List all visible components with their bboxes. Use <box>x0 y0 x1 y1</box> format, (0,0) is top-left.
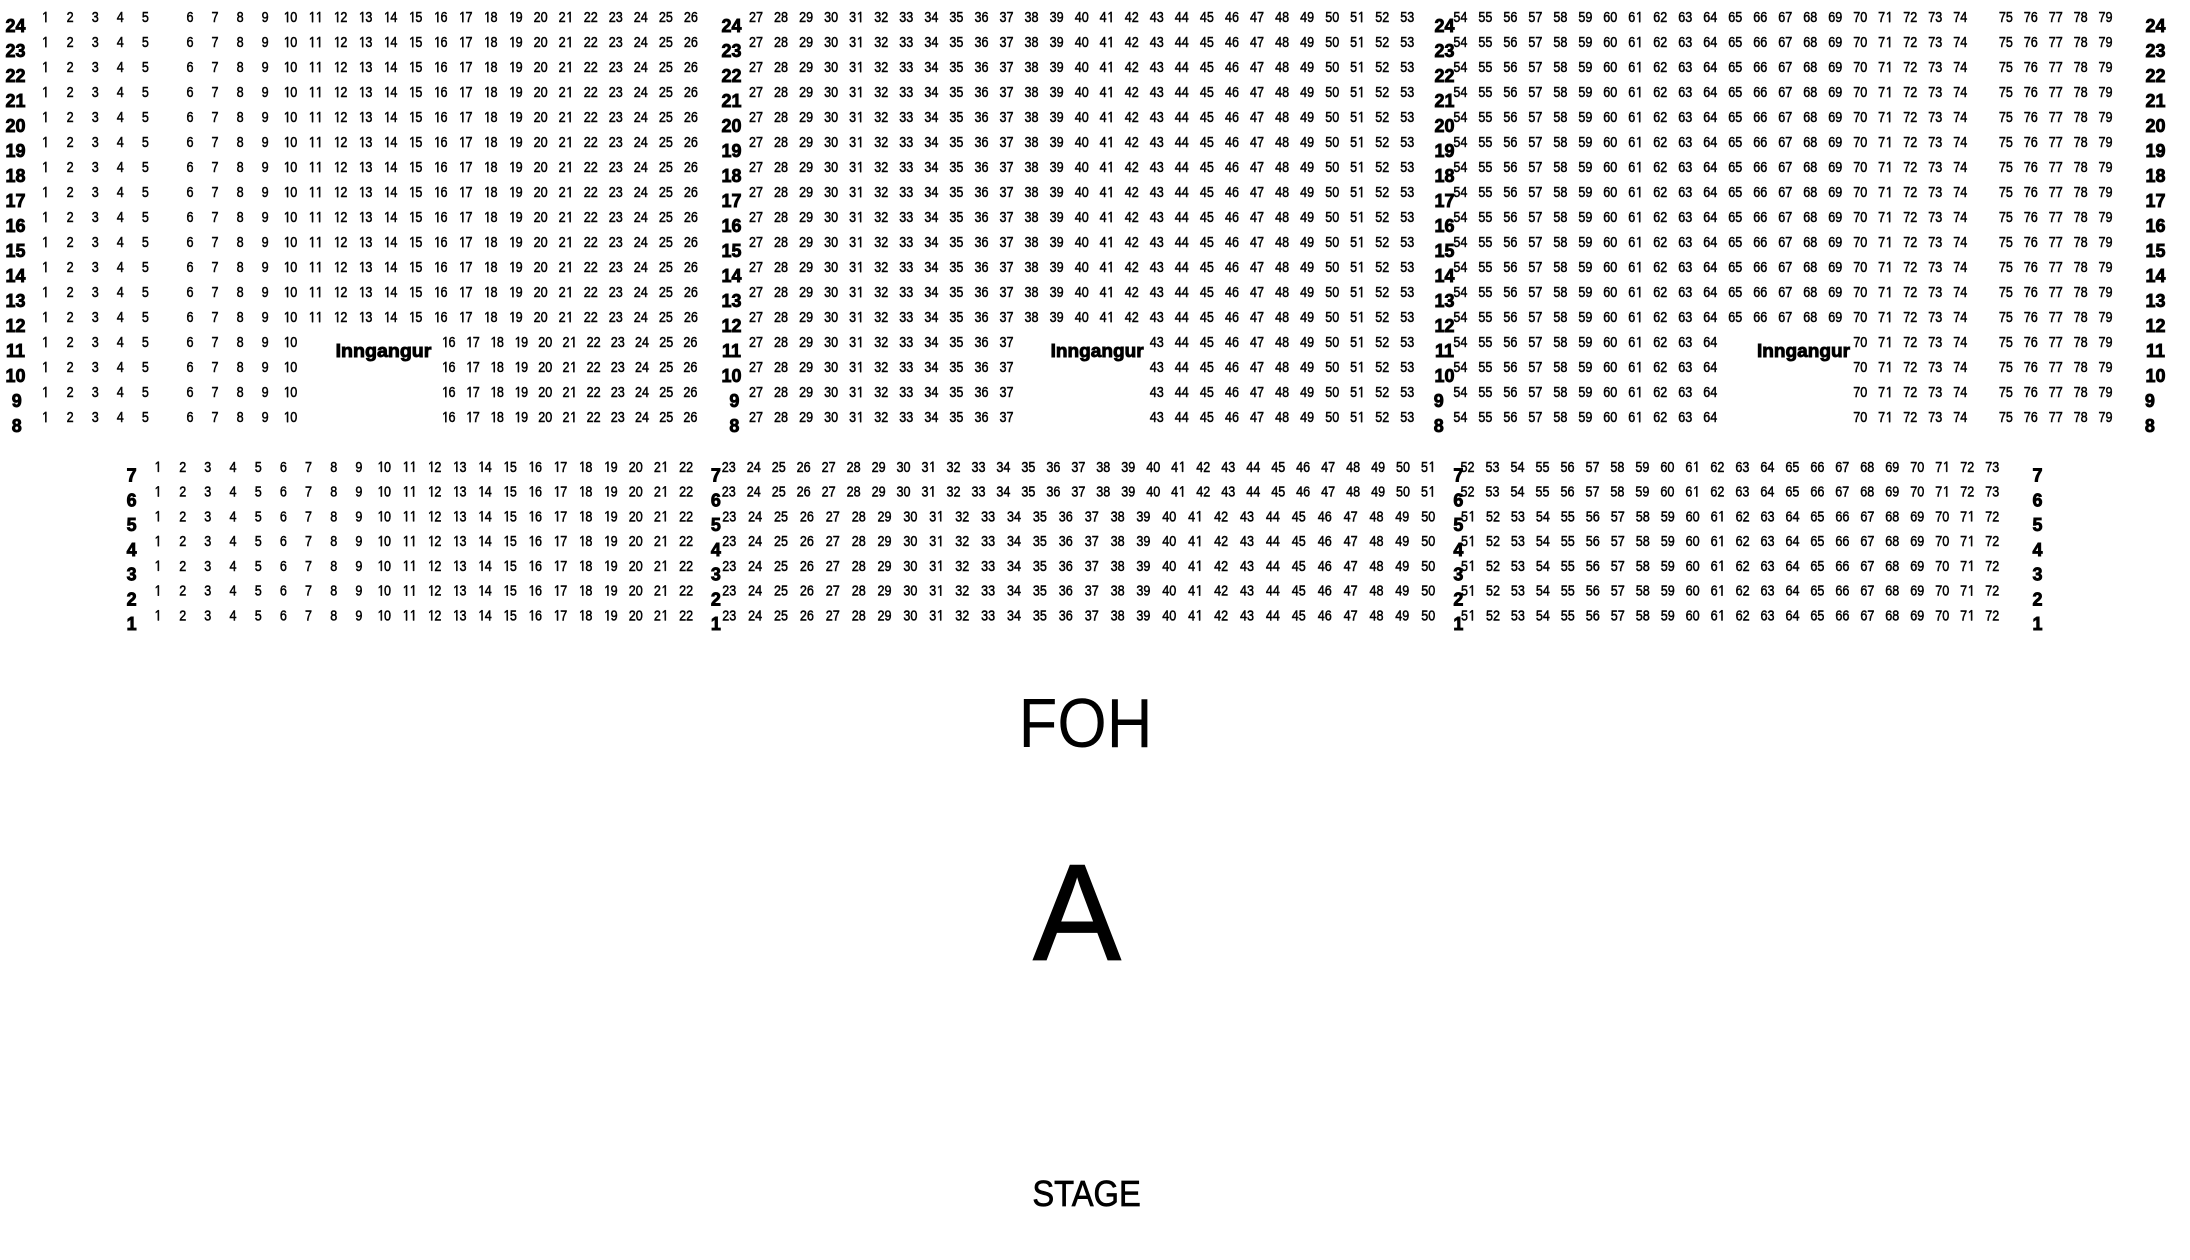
svg-text:28: 28 <box>774 408 788 425</box>
svg-text:33: 33 <box>899 408 913 425</box>
svg-text:53: 53 <box>1400 183 1414 200</box>
svg-text:5: 5 <box>510 507 517 524</box>
svg-text:44: 44 <box>1175 258 1189 275</box>
svg-text:78: 78 <box>2074 383 2088 400</box>
svg-text:56: 56 <box>1586 532 1600 549</box>
svg-text:25: 25 <box>659 258 673 275</box>
svg-text:22: 22 <box>584 33 598 50</box>
svg-text:39: 39 <box>1050 83 1064 100</box>
svg-text:48: 48 <box>1275 358 1289 375</box>
svg-text:67: 67 <box>1778 183 1792 200</box>
svg-text:66: 66 <box>1835 606 1849 623</box>
svg-text:28: 28 <box>852 557 866 574</box>
svg-text:23: 23 <box>2146 41 2166 61</box>
svg-text:3: 3 <box>365 133 372 150</box>
svg-text:6: 6 <box>1628 283 1635 300</box>
svg-text:30: 30 <box>824 33 838 50</box>
svg-text:5: 5 <box>2033 515 2043 535</box>
svg-text:7: 7 <box>211 308 218 325</box>
svg-text:24: 24 <box>2146 16 2167 36</box>
svg-text:7: 7 <box>473 358 480 375</box>
svg-text:47: 47 <box>1250 408 1264 425</box>
svg-text:2: 2 <box>434 606 441 623</box>
svg-text:7: 7 <box>305 507 312 524</box>
svg-text:53: 53 <box>1511 606 1525 623</box>
svg-text:48: 48 <box>1275 258 1289 275</box>
svg-text:60: 60 <box>1603 283 1617 300</box>
svg-text:43: 43 <box>1150 58 1164 75</box>
svg-text:3: 3 <box>929 532 936 549</box>
svg-text:5: 5 <box>255 606 262 623</box>
svg-text:36: 36 <box>974 233 988 250</box>
svg-text:63: 63 <box>1678 208 1692 225</box>
svg-text:79: 79 <box>2098 258 2112 275</box>
svg-text:35: 35 <box>949 358 963 375</box>
svg-text:8: 8 <box>585 606 592 623</box>
svg-text:38: 38 <box>1111 582 1125 599</box>
svg-text:6: 6 <box>441 258 448 275</box>
svg-text:64: 64 <box>1703 58 1717 75</box>
svg-text:4: 4 <box>117 58 124 75</box>
svg-text:2: 2 <box>559 208 566 225</box>
svg-text:23: 23 <box>609 283 623 300</box>
svg-text:6: 6 <box>280 483 287 500</box>
svg-text:48: 48 <box>1275 108 1289 125</box>
svg-text:67: 67 <box>1778 308 1792 325</box>
svg-text:44: 44 <box>1175 58 1189 75</box>
svg-text:4: 4 <box>390 308 397 325</box>
svg-text:32: 32 <box>874 158 888 175</box>
svg-text:40: 40 <box>1075 33 1089 50</box>
svg-text:6: 6 <box>449 333 456 350</box>
svg-text:49: 49 <box>1300 58 1314 75</box>
svg-text:23: 23 <box>722 507 736 524</box>
svg-text:79: 79 <box>2098 283 2112 300</box>
svg-text:2: 2 <box>654 507 661 524</box>
svg-text:8: 8 <box>237 408 244 425</box>
svg-text:75: 75 <box>1999 133 2013 150</box>
svg-text:0: 0 <box>290 158 297 175</box>
svg-text:49: 49 <box>1395 582 1409 599</box>
svg-text:49: 49 <box>1395 557 1409 574</box>
svg-text:60: 60 <box>1603 33 1617 50</box>
svg-text:5: 5 <box>415 33 422 50</box>
svg-text:52: 52 <box>1375 33 1389 50</box>
svg-text:33: 33 <box>899 8 913 25</box>
svg-text:4: 4 <box>229 483 236 500</box>
svg-text:9: 9 <box>611 458 618 475</box>
svg-text:53: 53 <box>1400 408 1414 425</box>
svg-text:16: 16 <box>2146 216 2166 236</box>
svg-text:48: 48 <box>1346 483 1360 500</box>
svg-text:20: 20 <box>534 33 548 50</box>
svg-text:13: 13 <box>1435 291 1455 311</box>
svg-text:17: 17 <box>1435 191 1455 211</box>
svg-text:24: 24 <box>634 58 648 75</box>
svg-text:38: 38 <box>1024 133 1038 150</box>
svg-text:3: 3 <box>204 483 211 500</box>
svg-text:77: 77 <box>2049 133 2063 150</box>
svg-text:7: 7 <box>1878 8 1885 25</box>
svg-text:5: 5 <box>1350 183 1357 200</box>
svg-text:23: 23 <box>609 33 623 50</box>
svg-text:8: 8 <box>237 158 244 175</box>
svg-text:2: 2 <box>179 507 186 524</box>
svg-text:57: 57 <box>1528 383 1542 400</box>
svg-text:22: 22 <box>584 283 598 300</box>
svg-text:32: 32 <box>874 233 888 250</box>
svg-text:25: 25 <box>774 507 788 524</box>
svg-text:62: 62 <box>1736 532 1750 549</box>
svg-text:28: 28 <box>774 183 788 200</box>
svg-text:30: 30 <box>903 507 917 524</box>
svg-text:76: 76 <box>2024 208 2038 225</box>
svg-text:19: 19 <box>2146 141 2166 161</box>
svg-text:47: 47 <box>1250 133 1264 150</box>
svg-text:4: 4 <box>117 108 124 125</box>
svg-text:3: 3 <box>92 308 99 325</box>
svg-text:3: 3 <box>849 33 856 50</box>
svg-text:48: 48 <box>1275 208 1289 225</box>
svg-text:65: 65 <box>1728 108 1742 125</box>
svg-text:74: 74 <box>1953 408 1967 425</box>
svg-text:Inngangur: Inngangur <box>1757 340 1851 361</box>
svg-text:29: 29 <box>799 358 813 375</box>
svg-text:37: 37 <box>999 258 1013 275</box>
svg-text:7: 7 <box>211 133 218 150</box>
svg-text:32: 32 <box>955 582 969 599</box>
svg-text:50: 50 <box>1325 183 1339 200</box>
svg-text:59: 59 <box>1578 83 1592 100</box>
svg-text:20: 20 <box>629 458 643 475</box>
svg-text:66: 66 <box>1753 58 1767 75</box>
svg-text:8: 8 <box>237 183 244 200</box>
svg-text:55: 55 <box>1478 233 1492 250</box>
svg-text:27: 27 <box>749 358 763 375</box>
svg-text:64: 64 <box>1760 458 1774 475</box>
svg-text:4: 4 <box>1100 183 1107 200</box>
svg-text:22: 22 <box>6 66 26 86</box>
svg-text:5: 5 <box>1350 408 1357 425</box>
svg-text:22: 22 <box>679 606 693 623</box>
svg-text:62: 62 <box>1653 58 1667 75</box>
svg-text:69: 69 <box>1910 557 1924 574</box>
svg-text:47: 47 <box>1344 507 1358 524</box>
svg-text:7: 7 <box>211 208 218 225</box>
svg-text:6: 6 <box>186 8 193 25</box>
svg-text:48: 48 <box>1275 283 1289 300</box>
svg-text:0: 0 <box>384 458 391 475</box>
svg-text:67: 67 <box>1860 557 1874 574</box>
svg-text:9: 9 <box>262 58 269 75</box>
svg-text:47: 47 <box>1344 557 1358 574</box>
svg-text:8: 8 <box>585 458 592 475</box>
svg-text:7: 7 <box>1960 606 1967 623</box>
svg-text:5: 5 <box>127 515 137 535</box>
svg-text:20: 20 <box>534 283 548 300</box>
svg-text:73: 73 <box>1928 83 1942 100</box>
svg-text:7: 7 <box>466 8 473 25</box>
svg-text:2: 2 <box>67 33 74 50</box>
svg-text:37: 37 <box>999 58 1013 75</box>
svg-text:78: 78 <box>2074 333 2088 350</box>
svg-text:64: 64 <box>1785 557 1799 574</box>
svg-text:26: 26 <box>684 158 698 175</box>
svg-text:36: 36 <box>974 333 988 350</box>
svg-text:3: 3 <box>365 283 372 300</box>
svg-text:40: 40 <box>1162 582 1176 599</box>
svg-text:4: 4 <box>390 33 397 50</box>
svg-text:16: 16 <box>722 216 742 236</box>
svg-text:76: 76 <box>2024 308 2038 325</box>
svg-text:72: 72 <box>1903 158 1917 175</box>
svg-text:44: 44 <box>1175 383 1189 400</box>
svg-text:59: 59 <box>1578 183 1592 200</box>
svg-text:55: 55 <box>1478 133 1492 150</box>
svg-text:72: 72 <box>1903 408 1917 425</box>
svg-text:25: 25 <box>774 606 788 623</box>
svg-text:6: 6 <box>441 133 448 150</box>
svg-text:7: 7 <box>466 108 473 125</box>
svg-text:54: 54 <box>1453 8 1467 25</box>
svg-text:8: 8 <box>491 183 498 200</box>
svg-text:0: 0 <box>384 606 391 623</box>
svg-text:57: 57 <box>1528 33 1542 50</box>
svg-text:25: 25 <box>772 483 786 500</box>
svg-text:45: 45 <box>1292 532 1306 549</box>
svg-text:8: 8 <box>237 33 244 50</box>
svg-text:20: 20 <box>534 133 548 150</box>
svg-text:0: 0 <box>290 258 297 275</box>
svg-text:28: 28 <box>774 108 788 125</box>
svg-text:77: 77 <box>2049 208 2063 225</box>
svg-text:7: 7 <box>466 133 473 150</box>
svg-text:77: 77 <box>2049 33 2063 50</box>
svg-text:64: 64 <box>1703 83 1717 100</box>
svg-text:Inngangur: Inngangur <box>1051 340 1145 361</box>
svg-text:24: 24 <box>634 208 648 225</box>
svg-text:55: 55 <box>1478 58 1492 75</box>
svg-text:67: 67 <box>1835 458 1849 475</box>
svg-text:42: 42 <box>1125 308 1139 325</box>
svg-text:45: 45 <box>1200 183 1214 200</box>
svg-text:3: 3 <box>92 133 99 150</box>
svg-text:46: 46 <box>1318 606 1332 623</box>
svg-text:45: 45 <box>1200 358 1214 375</box>
svg-text:25: 25 <box>659 358 673 375</box>
svg-text:66: 66 <box>1810 458 1824 475</box>
svg-text:7: 7 <box>711 465 721 485</box>
svg-text:2: 2 <box>340 108 347 125</box>
svg-text:60: 60 <box>1603 233 1617 250</box>
svg-text:39: 39 <box>1050 108 1064 125</box>
svg-text:17: 17 <box>6 191 26 211</box>
svg-text:3: 3 <box>92 8 99 25</box>
svg-text:60: 60 <box>1603 108 1617 125</box>
svg-text:2: 2 <box>562 358 569 375</box>
svg-text:77: 77 <box>2049 333 2063 350</box>
svg-text:45: 45 <box>1200 208 1214 225</box>
svg-text:70: 70 <box>1910 458 1924 475</box>
svg-text:63: 63 <box>1735 458 1749 475</box>
svg-text:6: 6 <box>711 490 721 510</box>
svg-text:5: 5 <box>142 58 149 75</box>
svg-text:38: 38 <box>1024 8 1038 25</box>
svg-text:68: 68 <box>1803 283 1817 300</box>
svg-text:43: 43 <box>1150 283 1164 300</box>
svg-text:8: 8 <box>237 108 244 125</box>
svg-text:68: 68 <box>1885 557 1899 574</box>
svg-text:25: 25 <box>774 532 788 549</box>
svg-text:73: 73 <box>1928 133 1942 150</box>
svg-text:4: 4 <box>390 158 397 175</box>
svg-text:38: 38 <box>1024 158 1038 175</box>
svg-text:4: 4 <box>117 283 124 300</box>
svg-text:79: 79 <box>2098 208 2112 225</box>
svg-text:23: 23 <box>722 582 736 599</box>
svg-text:9: 9 <box>355 557 362 574</box>
svg-text:68: 68 <box>1860 458 1874 475</box>
svg-text:34: 34 <box>996 483 1010 500</box>
svg-text:55: 55 <box>1478 158 1492 175</box>
svg-text:26: 26 <box>800 606 814 623</box>
svg-text:2: 2 <box>654 532 661 549</box>
svg-text:13: 13 <box>722 291 742 311</box>
svg-text:35: 35 <box>1033 507 1047 524</box>
svg-text:18: 18 <box>2146 166 2166 186</box>
svg-text:6: 6 <box>2033 490 2043 510</box>
svg-text:49: 49 <box>1371 483 1385 500</box>
svg-text:9: 9 <box>729 391 739 411</box>
svg-text:3: 3 <box>460 507 467 524</box>
svg-text:4: 4 <box>1171 483 1178 500</box>
svg-text:72: 72 <box>1903 83 1917 100</box>
svg-text:28: 28 <box>774 133 788 150</box>
svg-text:27: 27 <box>749 233 763 250</box>
svg-text:55: 55 <box>1478 183 1492 200</box>
svg-text:19: 19 <box>722 141 742 161</box>
svg-text:24: 24 <box>634 283 648 300</box>
svg-text:23: 23 <box>722 41 742 61</box>
svg-text:27: 27 <box>826 557 840 574</box>
svg-text:34: 34 <box>924 258 938 275</box>
svg-text:47: 47 <box>1250 233 1264 250</box>
svg-text:4: 4 <box>1100 58 1107 75</box>
svg-text:49: 49 <box>1300 208 1314 225</box>
svg-text:33: 33 <box>899 133 913 150</box>
svg-text:63: 63 <box>1760 532 1774 549</box>
svg-text:10: 10 <box>2146 366 2166 386</box>
svg-text:7: 7 <box>473 333 480 350</box>
svg-text:4: 4 <box>485 557 492 574</box>
svg-text:23: 23 <box>611 358 625 375</box>
svg-text:9: 9 <box>355 606 362 623</box>
svg-text:6: 6 <box>441 283 448 300</box>
svg-text:42: 42 <box>1125 108 1139 125</box>
svg-text:3: 3 <box>92 183 99 200</box>
svg-text:77: 77 <box>2049 283 2063 300</box>
svg-text:2: 2 <box>559 283 566 300</box>
svg-text:32: 32 <box>874 108 888 125</box>
svg-text:62: 62 <box>1653 308 1667 325</box>
svg-text:24: 24 <box>634 83 648 100</box>
svg-text:8: 8 <box>491 308 498 325</box>
svg-text:56: 56 <box>1586 582 1600 599</box>
svg-text:58: 58 <box>1636 532 1650 549</box>
svg-text:8: 8 <box>237 333 244 350</box>
svg-text:6: 6 <box>535 606 542 623</box>
svg-text:26: 26 <box>684 108 698 125</box>
svg-text:5: 5 <box>1350 308 1357 325</box>
svg-text:40: 40 <box>1075 58 1089 75</box>
svg-text:46: 46 <box>1318 557 1332 574</box>
svg-text:67: 67 <box>1860 582 1874 599</box>
svg-text:4: 4 <box>390 183 397 200</box>
svg-text:44: 44 <box>1175 283 1189 300</box>
svg-text:59: 59 <box>1661 532 1675 549</box>
svg-text:78: 78 <box>2074 58 2088 75</box>
svg-text:27: 27 <box>822 483 836 500</box>
svg-text:2: 2 <box>559 258 566 275</box>
svg-text:77: 77 <box>2049 108 2063 125</box>
svg-text:0: 0 <box>384 532 391 549</box>
svg-text:5: 5 <box>142 383 149 400</box>
svg-text:28: 28 <box>852 532 866 549</box>
svg-text:42: 42 <box>1125 8 1139 25</box>
svg-text:33: 33 <box>899 358 913 375</box>
svg-text:5: 5 <box>415 8 422 25</box>
svg-text:70: 70 <box>1853 383 1867 400</box>
svg-text:28: 28 <box>852 606 866 623</box>
svg-text:20: 20 <box>534 158 548 175</box>
svg-text:73: 73 <box>1928 408 1942 425</box>
svg-text:53: 53 <box>1485 483 1499 500</box>
svg-text:73: 73 <box>1928 158 1942 175</box>
svg-text:9: 9 <box>262 308 269 325</box>
svg-text:30: 30 <box>824 383 838 400</box>
svg-text:37: 37 <box>999 208 1013 225</box>
svg-text:6: 6 <box>535 507 542 524</box>
svg-text:60: 60 <box>1686 532 1700 549</box>
svg-text:12: 12 <box>6 316 26 336</box>
svg-text:37: 37 <box>1085 532 1099 549</box>
svg-text:78: 78 <box>2074 8 2088 25</box>
svg-text:24: 24 <box>722 16 743 36</box>
svg-text:57: 57 <box>1611 532 1625 549</box>
svg-text:24: 24 <box>634 258 648 275</box>
svg-text:39: 39 <box>1050 308 1064 325</box>
svg-text:3: 3 <box>849 133 856 150</box>
svg-text:6: 6 <box>1628 133 1635 150</box>
svg-text:8: 8 <box>585 557 592 574</box>
svg-text:24: 24 <box>635 333 649 350</box>
svg-text:8: 8 <box>1434 416 1444 436</box>
svg-text:70: 70 <box>1853 58 1867 75</box>
svg-text:30: 30 <box>824 183 838 200</box>
svg-text:5: 5 <box>415 258 422 275</box>
svg-text:8: 8 <box>491 83 498 100</box>
svg-text:66: 66 <box>1753 133 1767 150</box>
svg-text:74: 74 <box>1953 58 1967 75</box>
svg-text:7: 7 <box>211 358 218 375</box>
svg-text:53: 53 <box>1511 557 1525 574</box>
svg-text:38: 38 <box>1024 233 1038 250</box>
svg-text:47: 47 <box>1344 582 1358 599</box>
svg-text:74: 74 <box>1953 308 1967 325</box>
svg-text:49: 49 <box>1300 358 1314 375</box>
svg-text:77: 77 <box>2049 358 2063 375</box>
svg-text:44: 44 <box>1246 458 1260 475</box>
